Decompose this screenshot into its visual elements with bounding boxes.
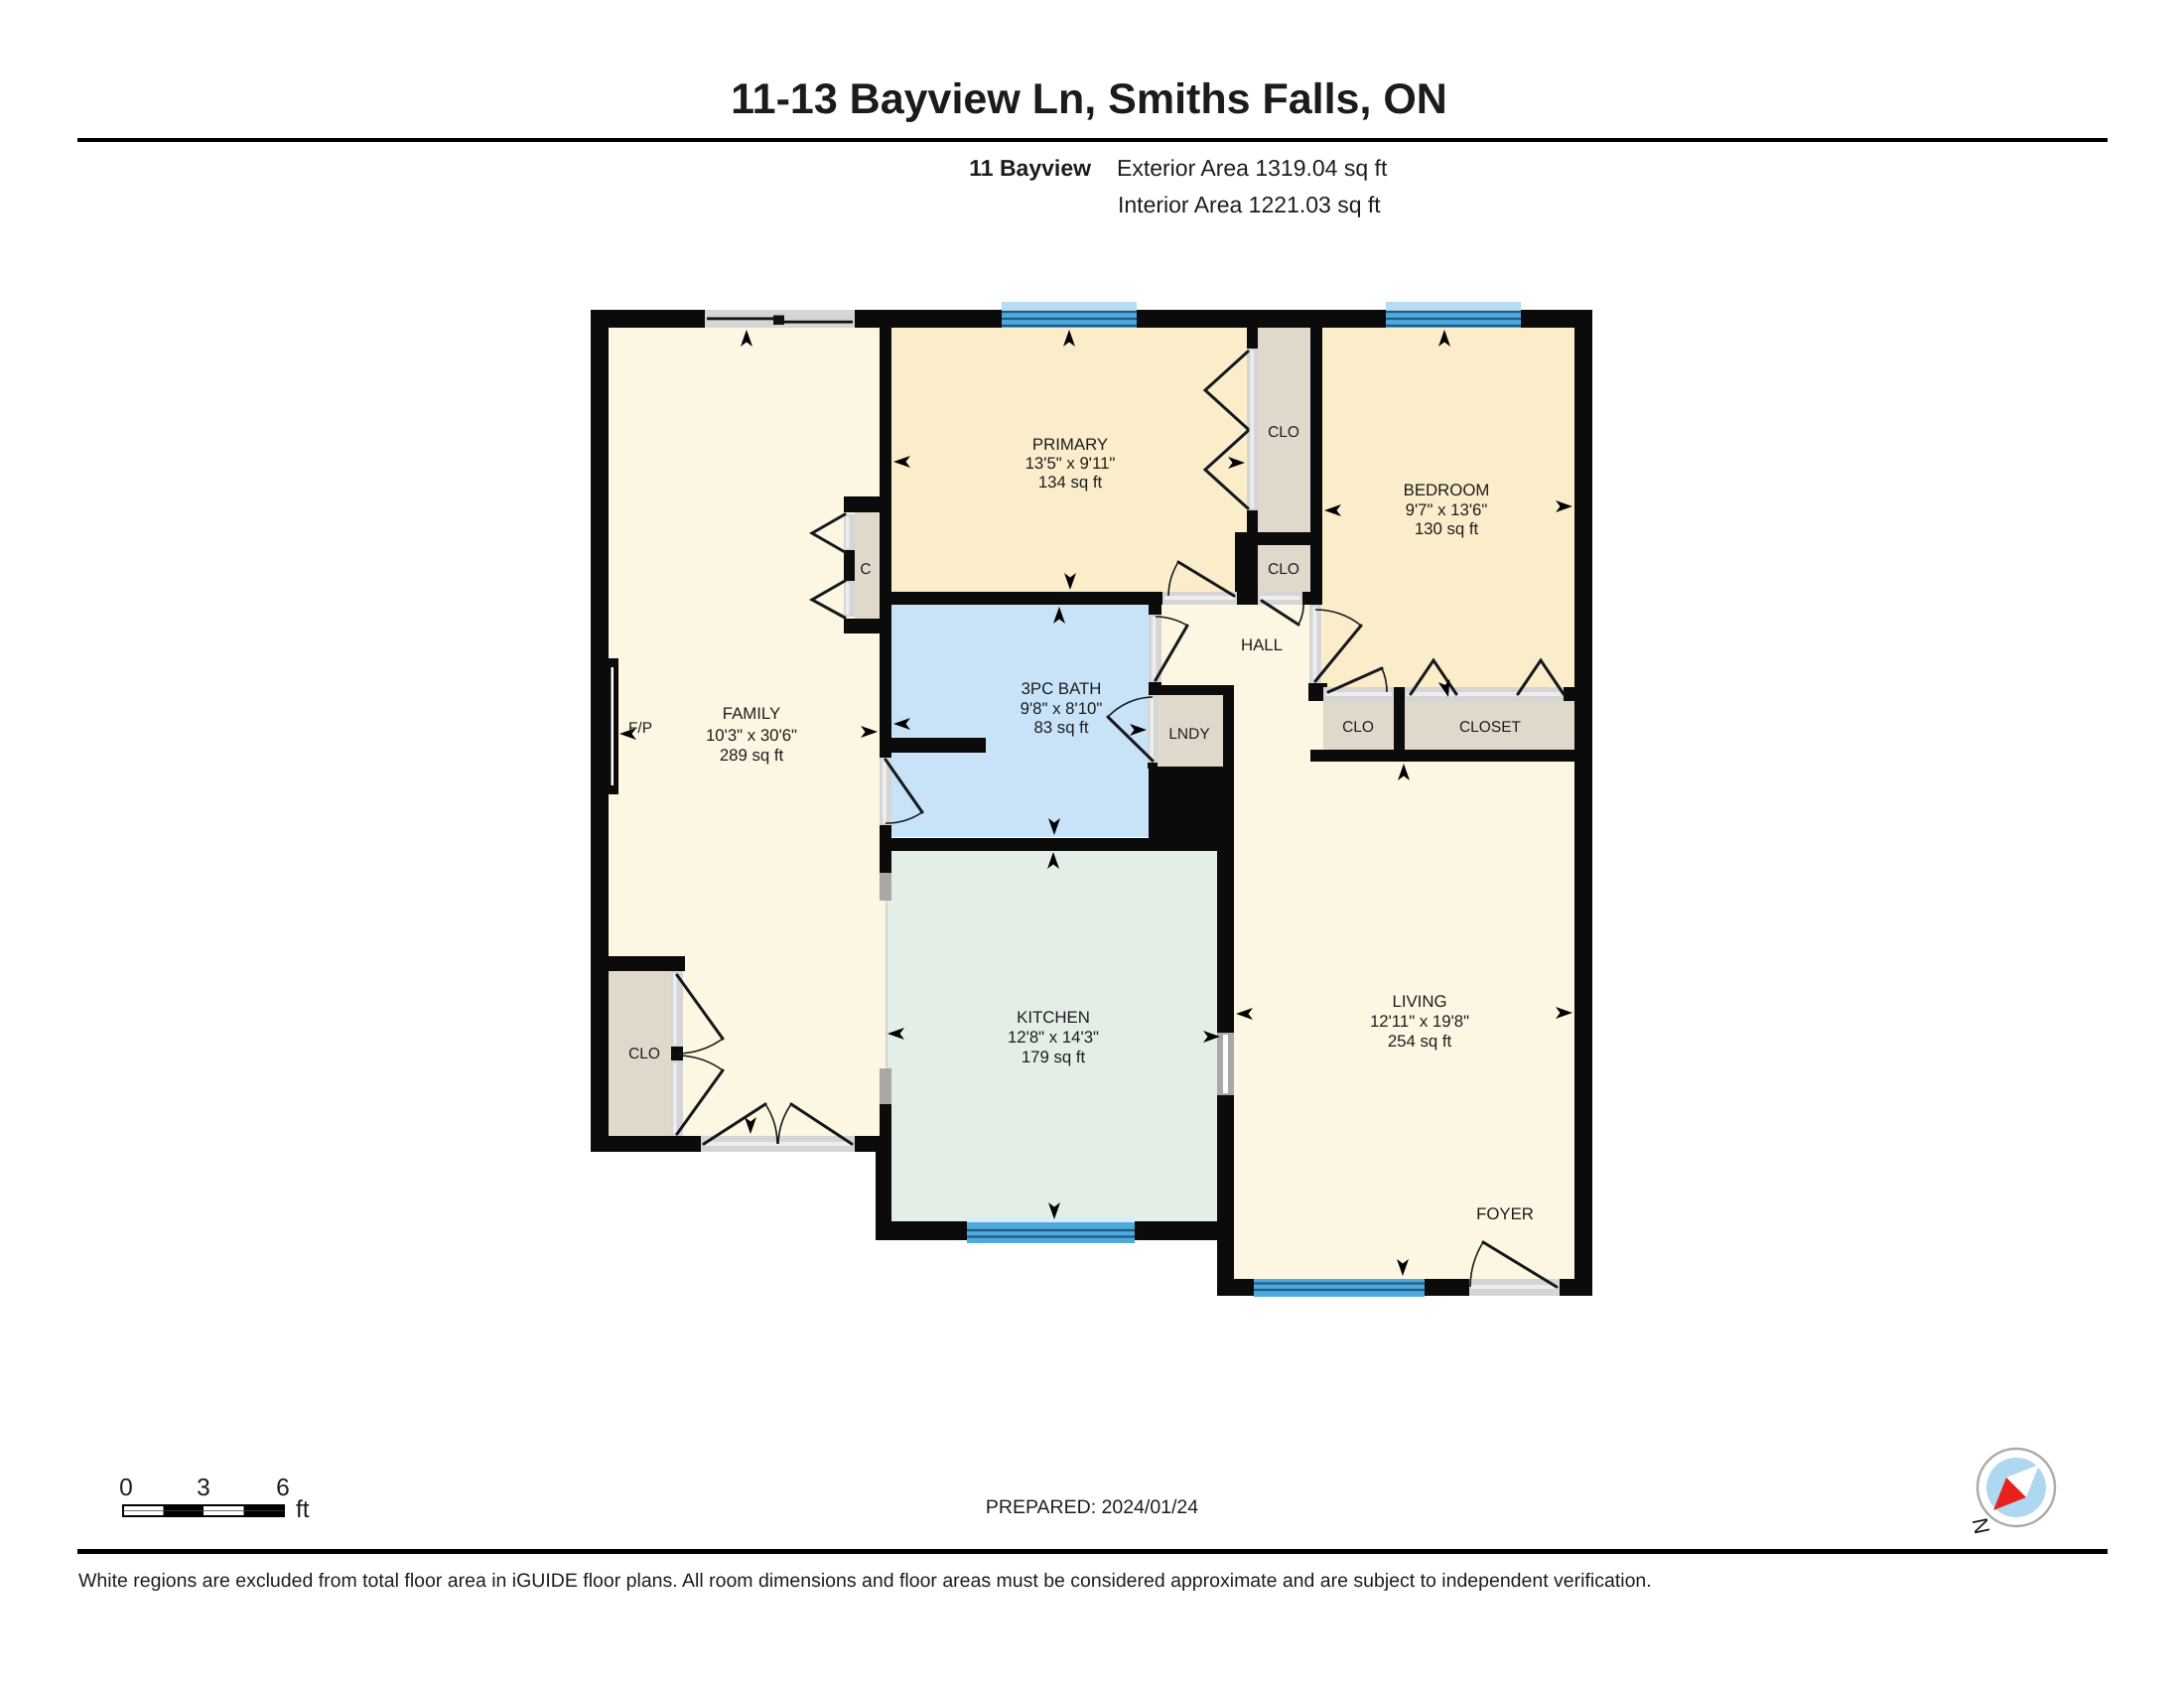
svg-text:HALL: HALL [1241,635,1283,654]
svg-text:289 sq ft: 289 sq ft [720,746,784,765]
svg-text:0: 0 [119,1475,133,1501]
svg-text:130 sq ft: 130 sq ft [1415,519,1479,538]
svg-text:83 sq ft: 83 sq ft [1033,718,1088,737]
svg-text:C: C [860,561,871,578]
svg-text:3PC BATH: 3PC BATH [1022,679,1102,698]
svg-text:12'8" x 14'3": 12'8" x 14'3" [1008,1028,1099,1047]
svg-text:White regions are excluded fro: White regions are excluded from total fl… [78,1570,1652,1592]
svg-text:CLO: CLO [1268,424,1299,441]
svg-text:LIVING: LIVING [1392,992,1446,1011]
svg-text:9'7" x 13'6": 9'7" x 13'6" [1406,500,1488,519]
svg-text:11-13 Bayview Ln, Smiths Falls: 11-13 Bayview Ln, Smiths Falls, ON [731,75,1447,123]
svg-text:134 sq ft: 134 sq ft [1038,473,1103,492]
svg-text:CLO: CLO [1268,561,1299,578]
svg-text:PRIMARY: PRIMARY [1032,435,1108,454]
svg-text:3: 3 [197,1475,210,1501]
svg-text:CLOSET: CLOSET [1459,719,1522,736]
svg-text:13'5" x 9'11": 13'5" x 9'11" [1025,454,1116,473]
svg-text:Exterior Area 1319.04 sq ft: Exterior Area 1319.04 sq ft [1117,155,1388,181]
svg-text:CLO: CLO [628,1046,660,1062]
svg-text:F/P: F/P [628,720,652,737]
svg-text:11 Bayview: 11 Bayview [969,155,1091,181]
svg-text:FAMILY: FAMILY [723,704,780,723]
svg-text:LNDY: LNDY [1168,726,1209,743]
svg-text:PREPARED: 2024/01/24: PREPARED: 2024/01/24 [986,1496,1198,1518]
svg-text:179 sq ft: 179 sq ft [1022,1048,1086,1066]
svg-text:CLO: CLO [1342,719,1374,736]
svg-text:254 sq ft: 254 sq ft [1388,1032,1452,1051]
svg-text:ft: ft [296,1496,310,1523]
svg-text:BEDROOM: BEDROOM [1404,481,1490,499]
svg-text:10'3" x 30'6": 10'3" x 30'6" [706,726,797,745]
svg-text:12'11" x 19'8": 12'11" x 19'8" [1370,1012,1469,1031]
svg-text:9'8" x 8'10": 9'8" x 8'10" [1021,699,1103,718]
svg-text:FOYER: FOYER [1476,1204,1534,1223]
svg-text:KITCHEN: KITCHEN [1017,1008,1090,1027]
svg-text:Interior Area 1221.03 sq ft: Interior Area 1221.03 sq ft [1118,192,1381,217]
svg-text:6: 6 [276,1475,290,1501]
